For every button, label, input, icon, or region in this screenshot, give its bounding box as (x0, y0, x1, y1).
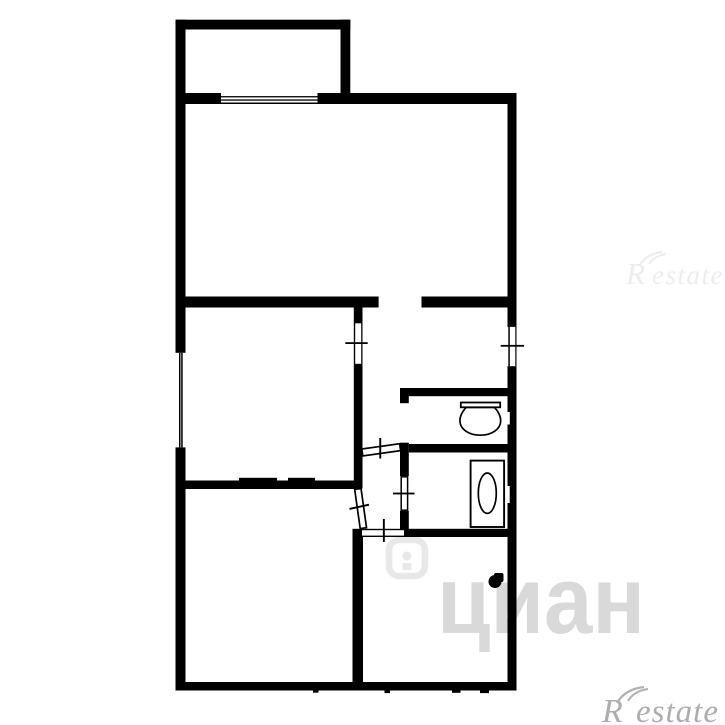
svg-text:estate: estate (636, 694, 719, 725)
svg-text:estate: estate (652, 260, 724, 290)
